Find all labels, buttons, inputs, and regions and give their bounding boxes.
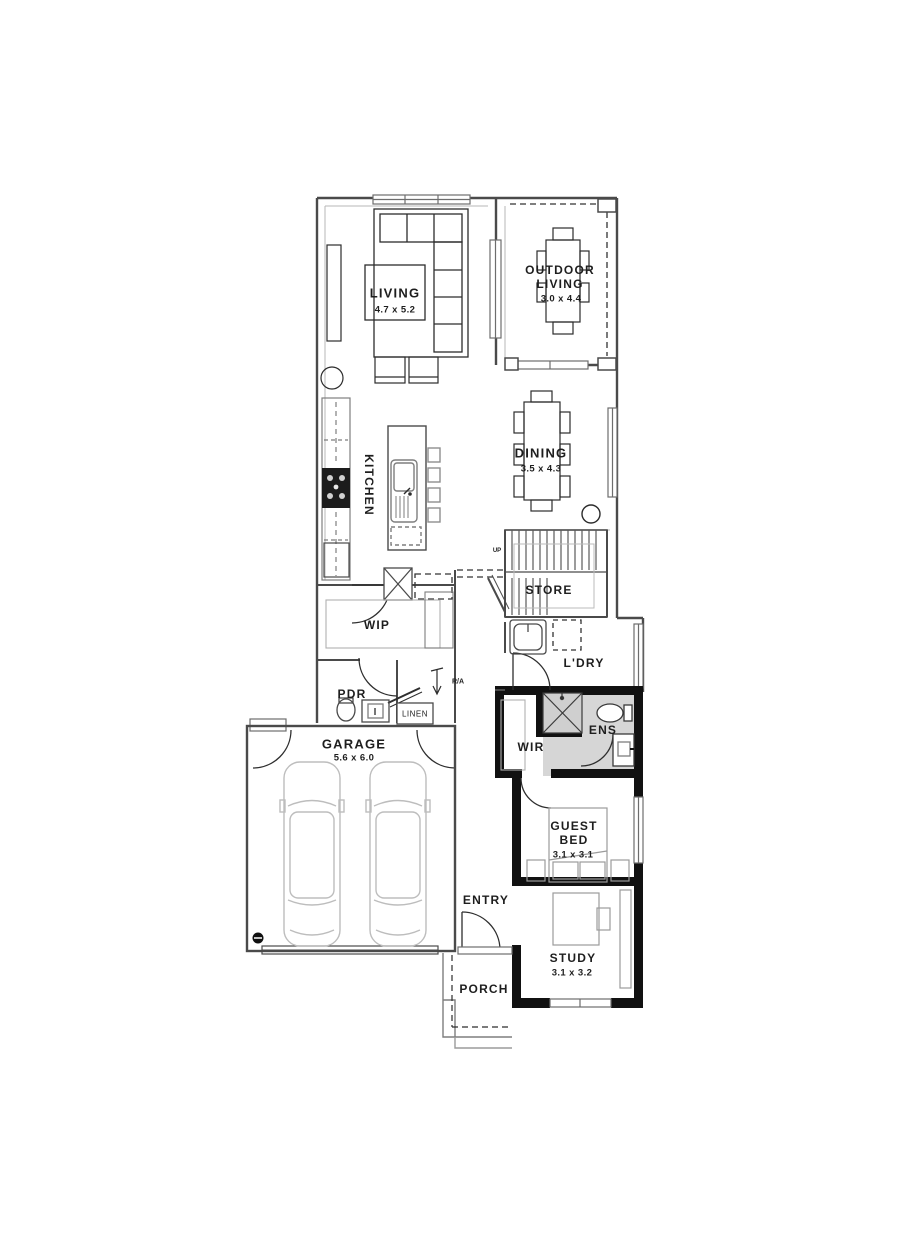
guest-bed-dims: 3.1 x 3.1 — [553, 850, 594, 861]
sofa — [374, 209, 468, 357]
return-air-label: R/A — [452, 679, 464, 686]
porch-structure — [443, 953, 512, 1048]
living-dims: 4.7 x 5.2 — [375, 305, 416, 316]
return-air-symbol — [431, 668, 443, 694]
wir-shelves — [501, 700, 525, 770]
linen-label: LINEN — [402, 710, 428, 719]
dining-dims: 3.5 x 4.3 — [521, 464, 562, 475]
garage-label: GARAGE — [322, 737, 386, 752]
outdoor-living-dims: 3.0 x 4.4 — [541, 294, 582, 305]
guest-bed-label-2: BED — [560, 833, 589, 847]
column-round — [582, 505, 600, 523]
entry-label: ENTRY — [463, 893, 509, 907]
kitchen-label: KITCHEN — [362, 454, 376, 516]
outdoor-living-label-1: OUTDOOR — [525, 263, 595, 277]
fridge — [384, 568, 412, 600]
wir-label: WIR — [518, 740, 545, 754]
laundry-label: L'DRY — [563, 656, 604, 670]
wip-label: WIP — [364, 618, 390, 632]
ensuite-label: ENS — [589, 723, 617, 737]
laundry-appliance — [553, 620, 581, 650]
stairs-up-label: UP — [493, 548, 501, 554]
entry-threshold — [458, 947, 512, 954]
floorplan-drawing — [0, 0, 901, 1245]
garage-dims: 5.6 x 6.0 — [334, 753, 375, 764]
pdr-fixtures — [337, 698, 389, 722]
ens-vanity — [613, 734, 634, 766]
porch-label: PORCH — [459, 982, 508, 996]
plant — [321, 367, 343, 389]
shower — [543, 693, 582, 733]
floorplan-canvas: LIVING 4.7 x 5.2 OUTDOOR LIVING 3.0 x 4.… — [0, 0, 901, 1245]
store-label: STORE — [525, 583, 572, 597]
dining-label: DINING — [515, 446, 568, 461]
ottomans — [375, 357, 438, 383]
ens-toilet — [597, 704, 632, 722]
car-left — [280, 762, 344, 946]
study-label: STUDY — [550, 951, 597, 965]
tv-unit — [327, 245, 341, 341]
study-dims: 3.1 x 3.2 — [552, 968, 593, 979]
cooktop — [322, 468, 350, 508]
kitchen-island — [388, 426, 440, 550]
outdoor-living-label-2: LIVING — [536, 277, 583, 291]
car-right — [366, 762, 430, 946]
guest-bed-label-1: GUEST — [550, 819, 597, 833]
powder-label: PDR — [338, 687, 367, 701]
living-label: LIVING — [370, 286, 421, 301]
laundry-trough — [510, 620, 546, 654]
